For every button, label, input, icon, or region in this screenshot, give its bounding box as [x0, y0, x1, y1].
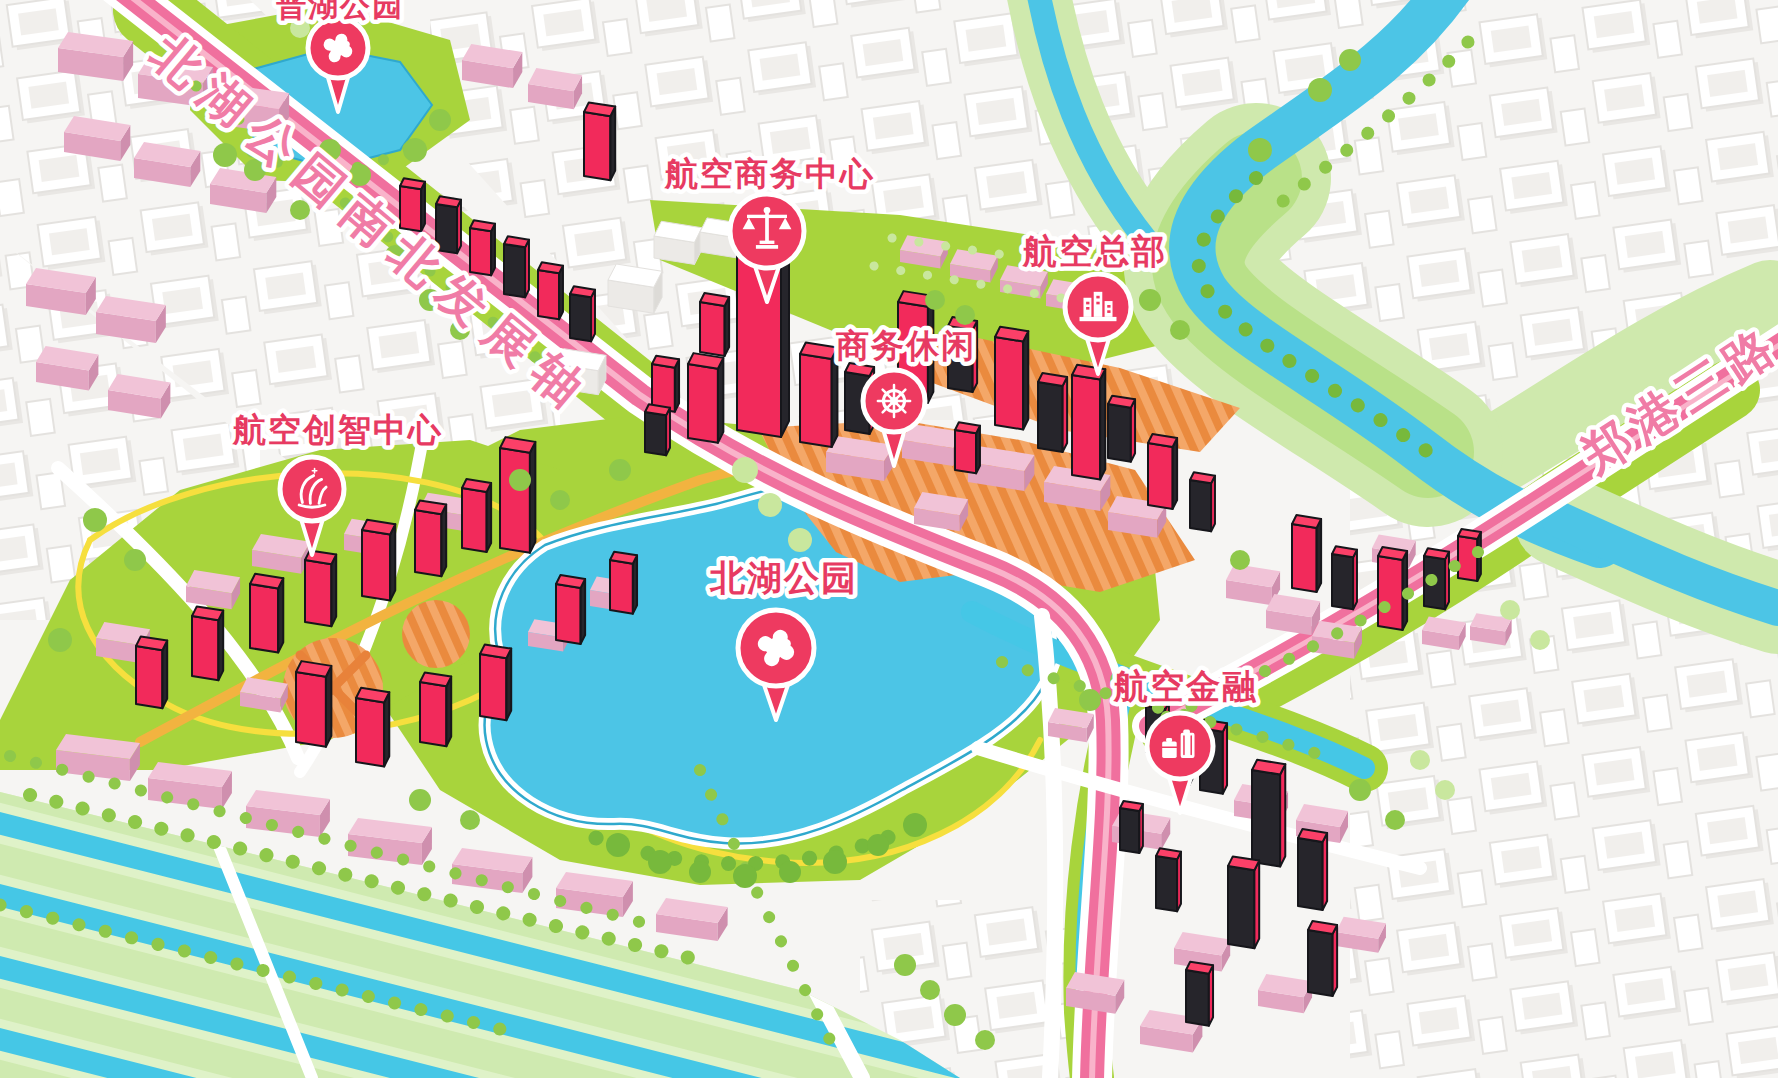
label-business-leisure: 商务休闲 [835, 327, 976, 364]
label-aviation-finance: 航空金融 [1113, 667, 1258, 705]
label-aviation-business-center: 航空商务中心 [664, 155, 875, 192]
label-aviation-headquarters: 航空总部 [1022, 232, 1167, 270]
label-aviation-innovation-center: 航空创智中心 [232, 411, 443, 448]
masterplan-map: 北湖公园南北发展轴郑港三路晋湖公园航空商务中心航空总部商务休闲航空创智中心北湖公… [0, 0, 1778, 1078]
label-north-lake-park: 北湖公园 [709, 558, 858, 597]
masterplan-canvas: 北湖公园南北发展轴郑港三路晋湖公园航空商务中心航空总部商务休闲航空创智中心北湖公… [0, 0, 1778, 1078]
label-jinhu-park: 晋湖公园 [276, 0, 404, 22]
ship-wheel-icon [878, 385, 910, 417]
